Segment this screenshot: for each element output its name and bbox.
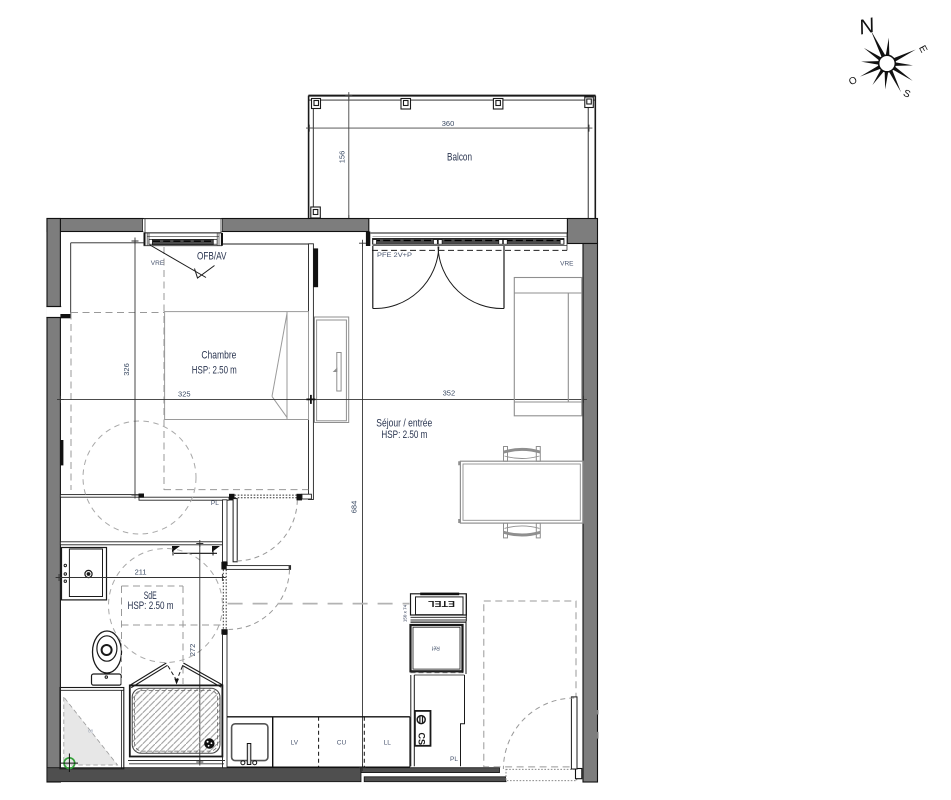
svg-text:HSP: 2.50 m: HSP: 2.50 m xyxy=(128,600,174,612)
svg-text:156: 156 xyxy=(338,151,347,164)
svg-text:CS: CS xyxy=(416,733,426,746)
svg-text:Réf: Réf xyxy=(431,645,439,651)
svg-text:684: 684 xyxy=(349,501,358,514)
svg-text:ETEL: ETEL xyxy=(428,599,455,608)
svg-text:LV: LV xyxy=(291,740,299,747)
svg-text:Balcon: Balcon xyxy=(447,152,472,164)
svg-text:LL: LL xyxy=(384,740,392,747)
svg-text:211: 211 xyxy=(135,567,147,576)
svg-text:272: 272 xyxy=(188,644,197,657)
svg-text:VRE: VRE xyxy=(151,260,165,267)
svg-text:Séjour / entrée: Séjour / entrée xyxy=(376,418,432,430)
svg-text:HSP: 2.50 m: HSP: 2.50 m xyxy=(381,429,427,441)
svg-text:PL: PL xyxy=(450,756,458,763)
svg-text:VRE: VRE xyxy=(560,260,574,267)
svg-text:CU: CU xyxy=(337,740,347,747)
svg-text:325: 325 xyxy=(178,389,191,398)
svg-text:352: 352 xyxy=(443,389,456,398)
svg-text:326: 326 xyxy=(122,363,131,376)
svg-text:150 x 74: 150 x 74 xyxy=(402,604,407,622)
svg-text:360: 360 xyxy=(442,119,455,128)
svg-text:PL: PL xyxy=(211,500,219,507)
svg-text:Chambre: Chambre xyxy=(201,350,236,362)
svg-text:OFB/AV: OFB/AV xyxy=(197,250,227,262)
svg-text:HSP: 2.50 m: HSP: 2.50 m xyxy=(192,364,237,376)
svg-text:08: 08 xyxy=(88,729,94,734)
svg-text:PFE 2V+P: PFE 2V+P xyxy=(377,252,412,259)
